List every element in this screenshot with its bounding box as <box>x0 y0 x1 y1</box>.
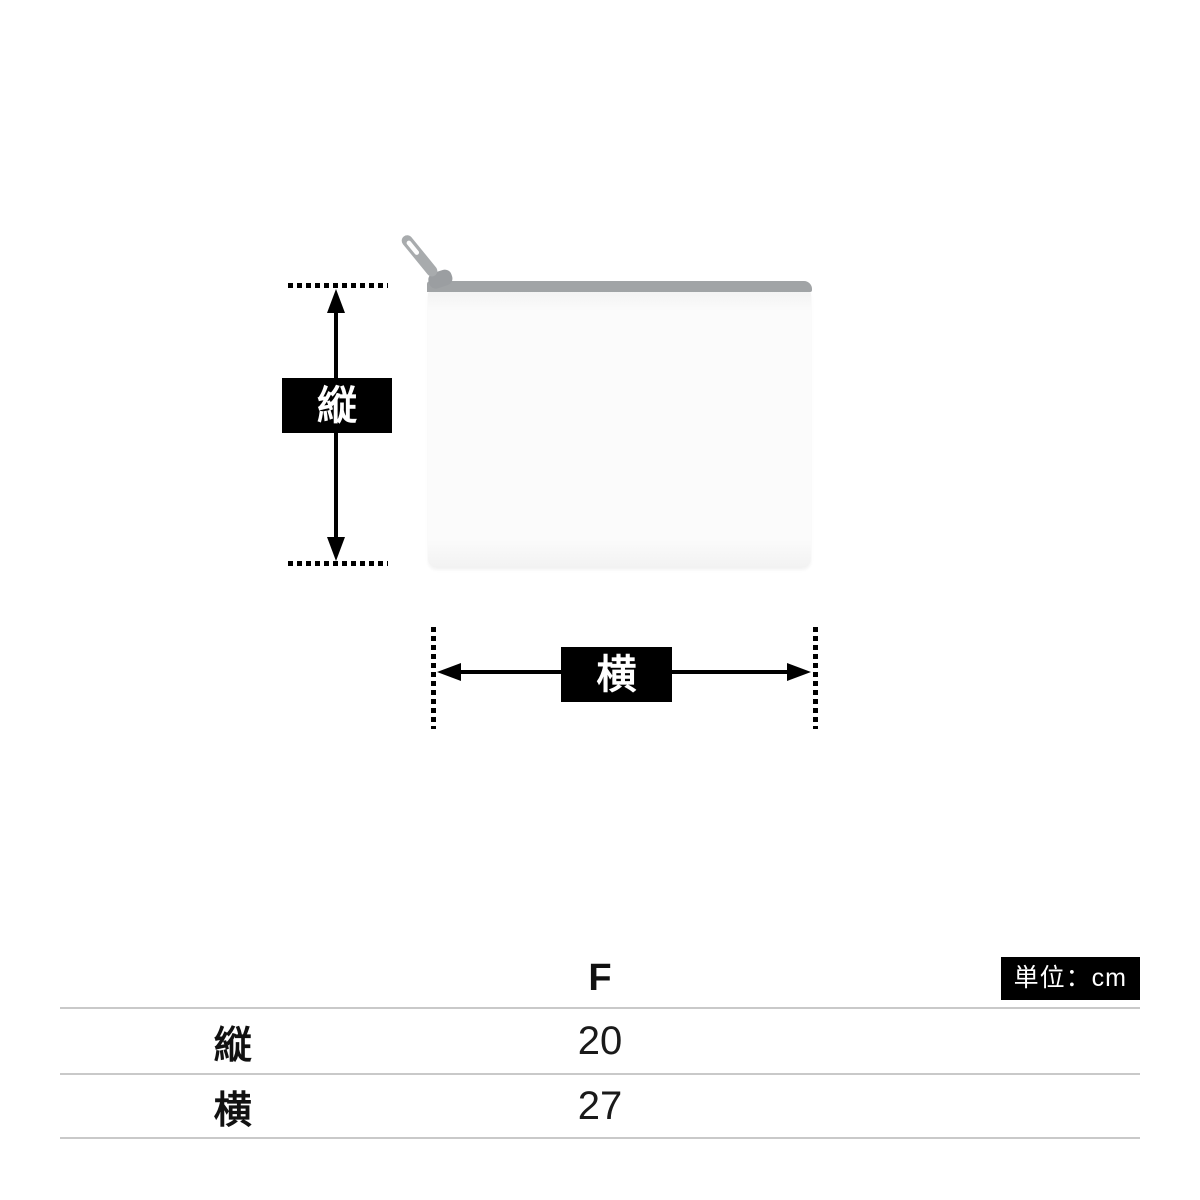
size-table: 単位：cm F 縦 20 横 27 <box>60 950 1140 1139</box>
unit-badge: 単位：cm <box>1001 957 1140 1000</box>
width-extent-line-left <box>431 627 436 729</box>
size-spec-image: 縦 横 単位：cm F 縦 20 横 27 <box>0 0 1200 1200</box>
table-row-height: 縦 20 <box>60 1007 1140 1073</box>
height-extent-line-top <box>288 283 388 288</box>
pouch-body <box>428 292 811 568</box>
width-extent-line-right <box>813 627 818 729</box>
pouch-illustration <box>427 281 812 568</box>
height-extent-line-bottom <box>288 561 388 566</box>
row-label: 横 <box>60 1079 406 1134</box>
row-label: 縦 <box>60 1014 406 1069</box>
height-label: 縦 <box>282 378 392 433</box>
zipper-pull-icon <box>397 233 487 303</box>
table-header-row: F <box>60 950 1140 1007</box>
row-value: 20 <box>406 1019 795 1064</box>
row-value: 27 <box>406 1084 795 1129</box>
size-column-header: F <box>406 957 795 1000</box>
width-label: 横 <box>561 647 672 702</box>
table-row-width: 横 27 <box>60 1073 1140 1139</box>
